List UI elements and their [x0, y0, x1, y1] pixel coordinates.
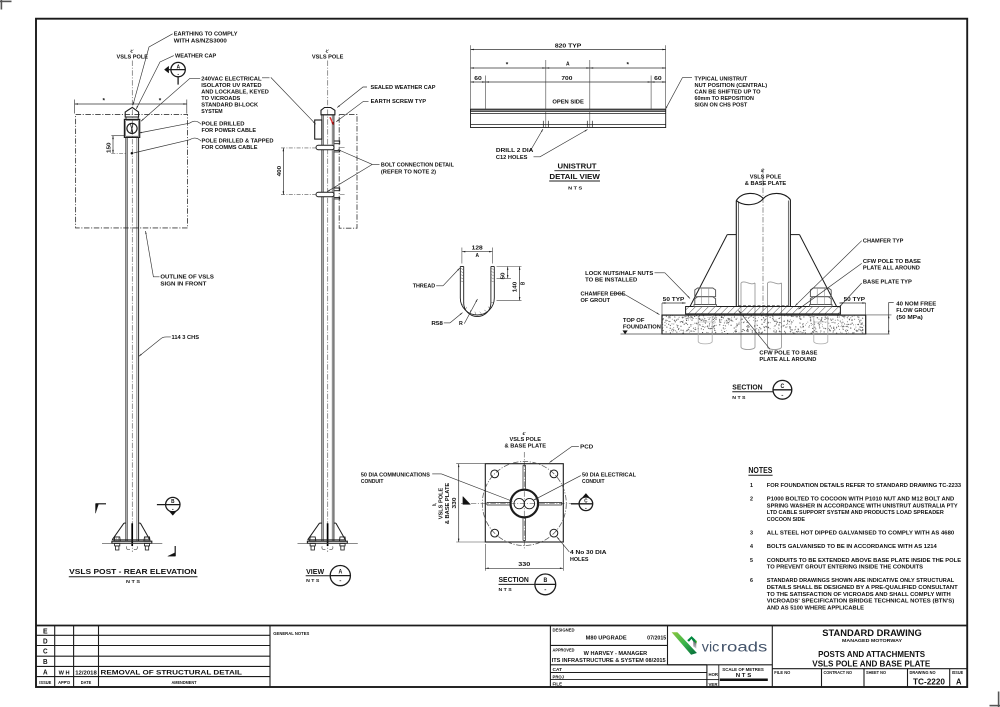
svg-text:VICROADS' SPECIFICATION BRIDGE: VICROADS' SPECIFICATION BRIDGE TECHNICAL…	[767, 599, 955, 605]
svg-text:CONDUITS TO BE EXTENDED ABOVE: CONDUITS TO BE EXTENDED ABOVE BASE PLATE…	[767, 558, 962, 564]
svg-text:VSLS POLE AND BASE PLATE: VSLS POLE AND BASE PLATE	[812, 659, 930, 669]
svg-text:TOP OF: TOP OF	[623, 318, 645, 324]
svg-text:EARTHING TO COMPLY: EARTHING TO COMPLY	[174, 32, 238, 38]
svg-text:CHAMFER TYP: CHAMFER TYP	[863, 239, 904, 245]
svg-text:B: B	[171, 499, 174, 505]
svg-text:5: 5	[750, 558, 753, 564]
svg-text:CFW POLE TO BASE: CFW POLE TO BASE	[759, 350, 817, 356]
svg-text:R: R	[459, 321, 463, 327]
svg-text:400: 400	[277, 166, 283, 177]
svg-text:CONDUIT: CONDUIT	[582, 479, 605, 485]
svg-text:STANDARD DRAWING: STANDARD DRAWING	[822, 628, 922, 638]
svg-text:VSLS POLE: VSLS POLE	[510, 437, 542, 443]
svg-text:SEALED WEATHER CAP: SEALED WEATHER CAP	[371, 85, 436, 91]
svg-text:C: C	[584, 499, 587, 505]
svg-text:TC-2220: TC-2220	[913, 677, 946, 686]
svg-text:BASE PLATE TYP: BASE PLATE TYP	[863, 279, 912, 285]
svg-text:60: 60	[654, 76, 662, 82]
svg-text:W H: W H	[59, 670, 70, 676]
svg-text:VSLS POLE: VSLS POLE	[312, 55, 344, 61]
svg-text:TO VICROADS: TO VICROADS	[201, 96, 240, 102]
svg-text:TO BE INSTALLED: TO BE INSTALLED	[585, 278, 637, 284]
svg-text:N T S: N T S	[306, 578, 319, 583]
svg-text:N T S: N T S	[568, 185, 582, 190]
svg-text:WITH AS/NZS3000: WITH AS/NZS3000	[174, 38, 227, 44]
svg-text:330: 330	[452, 497, 458, 508]
svg-text:1: 1	[750, 483, 753, 489]
svg-text:POLE DRILLED: POLE DRILLED	[202, 121, 245, 127]
svg-text:COCOON SIDE: COCOON SIDE	[767, 517, 806, 523]
svg-text:DRILL 2 DIA: DRILL 2 DIA	[496, 148, 534, 154]
svg-text:N T S: N T S	[499, 587, 512, 592]
svg-text:FOUNDATION: FOUNDATION	[623, 325, 661, 331]
svg-text:LTD CABLE SUPPORT SYSTEM AND P: LTD CABLE SUPPORT SYSTEM AND PRODUCTS LO…	[767, 510, 944, 516]
svg-text:50 DIA ELECTRICAL: 50 DIA ELECTRICAL	[582, 472, 637, 478]
svg-text:OF GROUT: OF GROUT	[581, 298, 611, 304]
svg-text:4: 4	[750, 544, 753, 550]
svg-text:PLATE ALL AROUND: PLATE ALL AROUND	[863, 266, 920, 272]
svg-text:VSLS POLE: VSLS POLE	[750, 174, 782, 180]
svg-text:FOR COMMS CABLE: FOR COMMS CABLE	[202, 145, 258, 151]
svg-text:UNISTRUT: UNISTRUT	[558, 162, 598, 171]
svg-text:SECTION: SECTION	[732, 382, 762, 391]
svg-text:150: 150	[107, 142, 113, 153]
svg-text:TYPICAL UNISTRUT: TYPICAL UNISTRUT	[695, 77, 749, 83]
svg-text:SYSTEM: SYSTEM	[201, 109, 223, 115]
svg-text:DETAILS SHALL BE DESIGNED BY A: DETAILS SHALL BE DESIGNED BY A PRE-QUALI…	[767, 585, 959, 591]
svg-text:REMOVAL OF STRUCTURAL DETAIL: REMOVAL OF STRUCTURAL DETAIL	[101, 670, 243, 677]
svg-text:SIGN IN FRONT: SIGN IN FRONT	[160, 281, 207, 287]
svg-text:(50 MPa): (50 MPa)	[896, 315, 923, 321]
svg-text:N T S: N T S	[732, 395, 745, 400]
svg-text:THREAD: THREAD	[413, 284, 436, 290]
svg-text:CAN BE SHIFTED UP TO: CAN BE SHIFTED UP TO	[695, 90, 761, 96]
svg-text:NUT POSITION (CENTRAL): NUT POSITION (CENTRAL)	[695, 83, 768, 89]
svg-text:A: A	[43, 667, 48, 676]
svg-text:BOLTS GALVANISED TO BE IN ACCO: BOLTS GALVANISED TO BE IN ACCORDANCE WIT…	[767, 544, 937, 550]
svg-text:B: B	[544, 577, 548, 584]
svg-text:HOR: HOR	[709, 672, 719, 677]
svg-text:R58: R58	[431, 321, 443, 327]
svg-text:OUTLINE OF VSLS: OUTLINE OF VSLS	[160, 275, 214, 281]
svg-text:APPROVED: APPROVED	[553, 647, 575, 652]
svg-text:B: B	[43, 657, 48, 666]
svg-text:FILE: FILE	[553, 681, 563, 686]
svg-text:WEATHER CAP: WEATHER CAP	[175, 54, 217, 60]
svg-text:3: 3	[750, 531, 753, 537]
svg-text:C: C	[43, 647, 48, 656]
svg-text:N T S: N T S	[126, 579, 140, 584]
svg-text:50 TYP: 50 TYP	[844, 297, 866, 303]
svg-text:GENERAL NOTES: GENERAL NOTES	[273, 631, 309, 636]
svg-text:E: E	[43, 627, 48, 636]
svg-text:12/2018: 12/2018	[75, 670, 97, 676]
svg-text:SHEET NO: SHEET NO	[866, 670, 887, 675]
svg-text:FOR FOUNDATION DETAILS REFER T: FOR FOUNDATION DETAILS REFER TO STANDARD…	[767, 483, 961, 489]
svg-text:-: -	[339, 578, 342, 584]
svg-text:W HARVEY - MANAGER: W HARVEY - MANAGER	[584, 651, 648, 657]
svg-text:POLE DRILLED & TAPPED: POLE DRILLED & TAPPED	[202, 138, 274, 144]
svg-text:AND LOCKABLE, KEYED: AND LOCKABLE, KEYED	[201, 89, 269, 95]
svg-text:128: 128	[472, 245, 483, 251]
svg-text:roads: roads	[721, 640, 768, 655]
svg-text:07/2015: 07/2015	[647, 635, 666, 641]
svg-text:820 TYP: 820 TYP	[555, 43, 582, 49]
svg-text:FLOW GROUT: FLOW GROUT	[896, 308, 935, 314]
svg-text:M80 UPGRADE: M80 UPGRADE	[586, 635, 628, 641]
svg-text:-: -	[544, 587, 547, 593]
svg-text:2: 2	[750, 497, 753, 503]
svg-text:40 NOM FREE: 40 NOM FREE	[896, 302, 936, 308]
svg-text:50: 50	[501, 272, 507, 279]
svg-text:DRAWING NO: DRAWING NO	[910, 670, 937, 675]
svg-text:CFW POLE TO BASE: CFW POLE TO BASE	[863, 259, 921, 265]
svg-text:A: A	[956, 677, 962, 686]
svg-text:-: -	[781, 392, 784, 398]
svg-text:NOTES: NOTES	[748, 466, 772, 475]
svg-text:A: A	[339, 569, 343, 576]
svg-text:ALL STEEL HOT DIPPED GALVANISE: ALL STEEL HOT DIPPED GALVANISED TO COMPL…	[767, 531, 954, 537]
svg-text:CHAMFER EDGE: CHAMFER EDGE	[581, 291, 626, 297]
svg-text:BOLT CONNECTION DETAIL: BOLT CONNECTION DETAIL	[381, 162, 455, 168]
svg-text:6: 6	[750, 578, 753, 584]
svg-text:STANDARD BI-LOCK: STANDARD BI-LOCK	[201, 102, 258, 108]
svg-text:SECTION: SECTION	[499, 575, 529, 584]
svg-text:ISOLATOR UV RATED: ISOLATOR UV RATED	[201, 83, 261, 89]
svg-text:CAT: CAT	[553, 667, 563, 672]
svg-text:VSLS POLE: VSLS POLE	[117, 55, 149, 61]
svg-text:ITS INFRASTRUCTURE & SYSTEM 08: ITS INFRASTRUCTURE & SYSTEM 08/2015	[552, 658, 666, 664]
svg-text:240VAC ELECTRICAL: 240VAC ELECTRICAL	[201, 76, 262, 82]
svg-text:A: A	[475, 253, 479, 259]
svg-text:N T S: N T S	[736, 673, 752, 679]
svg-text:VSLS POLE: VSLS POLE	[438, 487, 444, 519]
svg-text:& BASE PLATE: & BASE PLATE	[505, 444, 547, 450]
svg-text:APP'D: APP'D	[58, 680, 70, 685]
svg-text:60: 60	[474, 76, 482, 82]
svg-text:140: 140	[512, 281, 518, 292]
svg-text:A: A	[566, 61, 570, 67]
svg-text:DESIGNED: DESIGNED	[553, 627, 575, 632]
svg-text:HOLES: HOLES	[570, 557, 589, 563]
svg-text:B: B	[521, 281, 527, 285]
svg-text:CONTRACT NO: CONTRACT NO	[824, 670, 853, 675]
svg-text:60mm TO REPOSITION: 60mm TO REPOSITION	[695, 96, 755, 102]
svg-text:vic: vic	[702, 640, 720, 655]
svg-text:50 DIA COMMUNICATIONS: 50 DIA COMMUNICATIONS	[361, 472, 430, 478]
svg-text:EARTH SCREW TYP: EARTH SCREW TYP	[371, 99, 427, 105]
svg-text:FILE NO: FILE NO	[774, 670, 791, 675]
svg-text:& BASE PLATE: & BASE PLATE	[745, 181, 787, 187]
svg-text:AND AS 5100 WHERE APPLICABLE: AND AS 5100 WHERE APPLICABLE	[767, 605, 865, 611]
svg-text:114 3 CHS: 114 3 CHS	[172, 335, 200, 341]
svg-text:VER: VER	[709, 682, 719, 687]
svg-text:P1000 BOLTED TO COCOON WITH P1: P1000 BOLTED TO COCOON WITH P1010 NUT AN…	[767, 497, 955, 503]
svg-text:TO THE SATISFACTION OF VICROAD: TO THE SATISFACTION OF VICROADS AND SHAL…	[767, 592, 951, 598]
svg-text:ISSUE: ISSUE	[952, 670, 964, 675]
svg-text:50 TYP: 50 TYP	[663, 297, 685, 303]
svg-text:TO PREVENT GROUT ENTERING INSI: TO PREVENT GROUT ENTERING INSIDE THE CON…	[767, 565, 924, 571]
svg-text:SCALE OF METRES: SCALE OF METRES	[722, 667, 764, 672]
svg-text:SIGN ON CHS POST: SIGN ON CHS POST	[695, 103, 749, 109]
svg-text:ISSUE: ISSUE	[39, 680, 51, 685]
svg-text:330: 330	[518, 562, 530, 568]
svg-text:SPRING WASHER IN ACCORDANCE WI: SPRING WASHER IN ACCORDANCE WITH UNISTRU…	[767, 503, 958, 509]
svg-text:D: D	[43, 636, 48, 645]
svg-text:C: C	[781, 383, 785, 390]
svg-text:CONDUIT: CONDUIT	[361, 479, 384, 485]
svg-text:MANAGED MOTORWAY: MANAGED MOTORWAY	[842, 638, 902, 643]
svg-text:DETAIL VIEW: DETAIL VIEW	[549, 172, 600, 181]
svg-text:STANDARD DRAWINGS SHOWN ARE IN: STANDARD DRAWINGS SHOWN ARE INDICATIVE O…	[767, 578, 955, 584]
svg-text:AMENDMENT: AMENDMENT	[172, 680, 197, 685]
svg-text:PCD: PCD	[580, 444, 593, 450]
svg-text:4 No 30 DIA: 4 No 30 DIA	[570, 550, 607, 556]
svg-text:(REFER TO NOTE 2): (REFER TO NOTE 2)	[381, 169, 436, 175]
svg-text:PLATE ALL AROUND: PLATE ALL AROUND	[759, 357, 816, 363]
svg-text:OPEN SIDE: OPEN SIDE	[552, 100, 584, 106]
svg-text:VIEW: VIEW	[306, 567, 325, 576]
svg-text:& BASE PLATE: & BASE PLATE	[445, 482, 451, 524]
svg-text:FOR POWER CABLE: FOR POWER CABLE	[202, 128, 257, 134]
svg-text:LOCK NUTS/HALF NUTS: LOCK NUTS/HALF NUTS	[585, 271, 653, 277]
svg-text:700: 700	[561, 76, 572, 82]
svg-text:VSLS POST - REAR ELEVATION: VSLS POST - REAR ELEVATION	[69, 567, 197, 576]
svg-text:C12 HOLES: C12 HOLES	[496, 155, 528, 161]
svg-text:PROJ: PROJ	[553, 674, 565, 679]
svg-text:DATE: DATE	[81, 680, 92, 685]
